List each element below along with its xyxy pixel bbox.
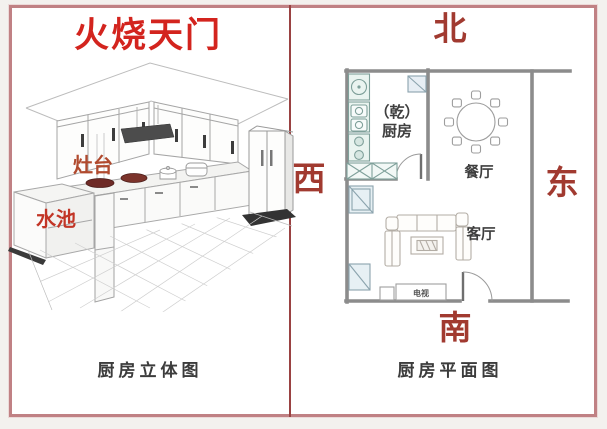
kitchen-label-line1: （乾）: [374, 103, 419, 121]
page-title: 火烧天门: [56, 7, 240, 58]
sofa-set: [385, 213, 471, 266]
direction-north: 北: [420, 14, 480, 47]
living-label: 客厅: [466, 225, 496, 243]
dining-table: [445, 91, 508, 153]
direction-west: 西: [291, 164, 327, 197]
refrigerator: [242, 126, 296, 226]
dining-label: 餐厅: [465, 163, 494, 181]
kitchen-label-line2: 厨房: [382, 122, 412, 140]
tv-label: 电视: [413, 288, 429, 298]
sink-label: 水池: [36, 208, 76, 231]
stove-label: 灶台: [73, 153, 113, 177]
direction-south: 南: [427, 313, 483, 346]
sink-peninsula: [8, 184, 114, 302]
floor-plan: （乾） 厨房 餐厅 客厅 电视: [340, 62, 576, 312]
kitchen-3d-drawing: 灶台 水池: [12, 55, 294, 317]
screenshot-root: 火烧天门: [0, 0, 607, 429]
left-caption: 厨房立体图: [60, 356, 240, 381]
right-caption: 厨房平面图: [360, 356, 540, 381]
